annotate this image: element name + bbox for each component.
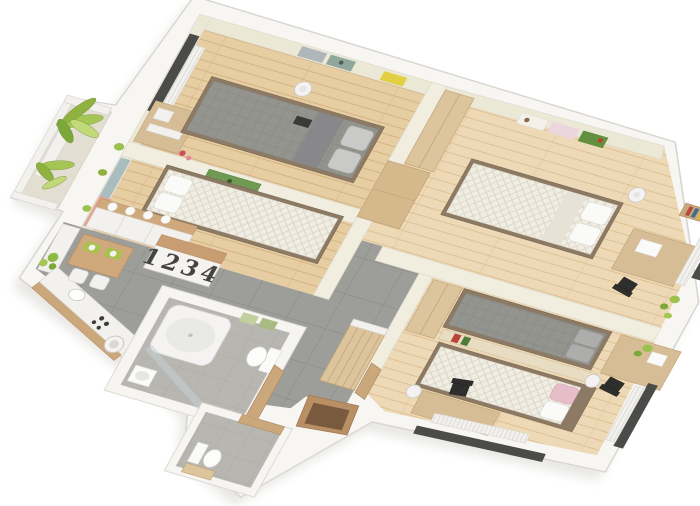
floor-plan-svg: 1234	[0, 0, 700, 506]
floor-plan-render: 1234	[0, 0, 700, 506]
